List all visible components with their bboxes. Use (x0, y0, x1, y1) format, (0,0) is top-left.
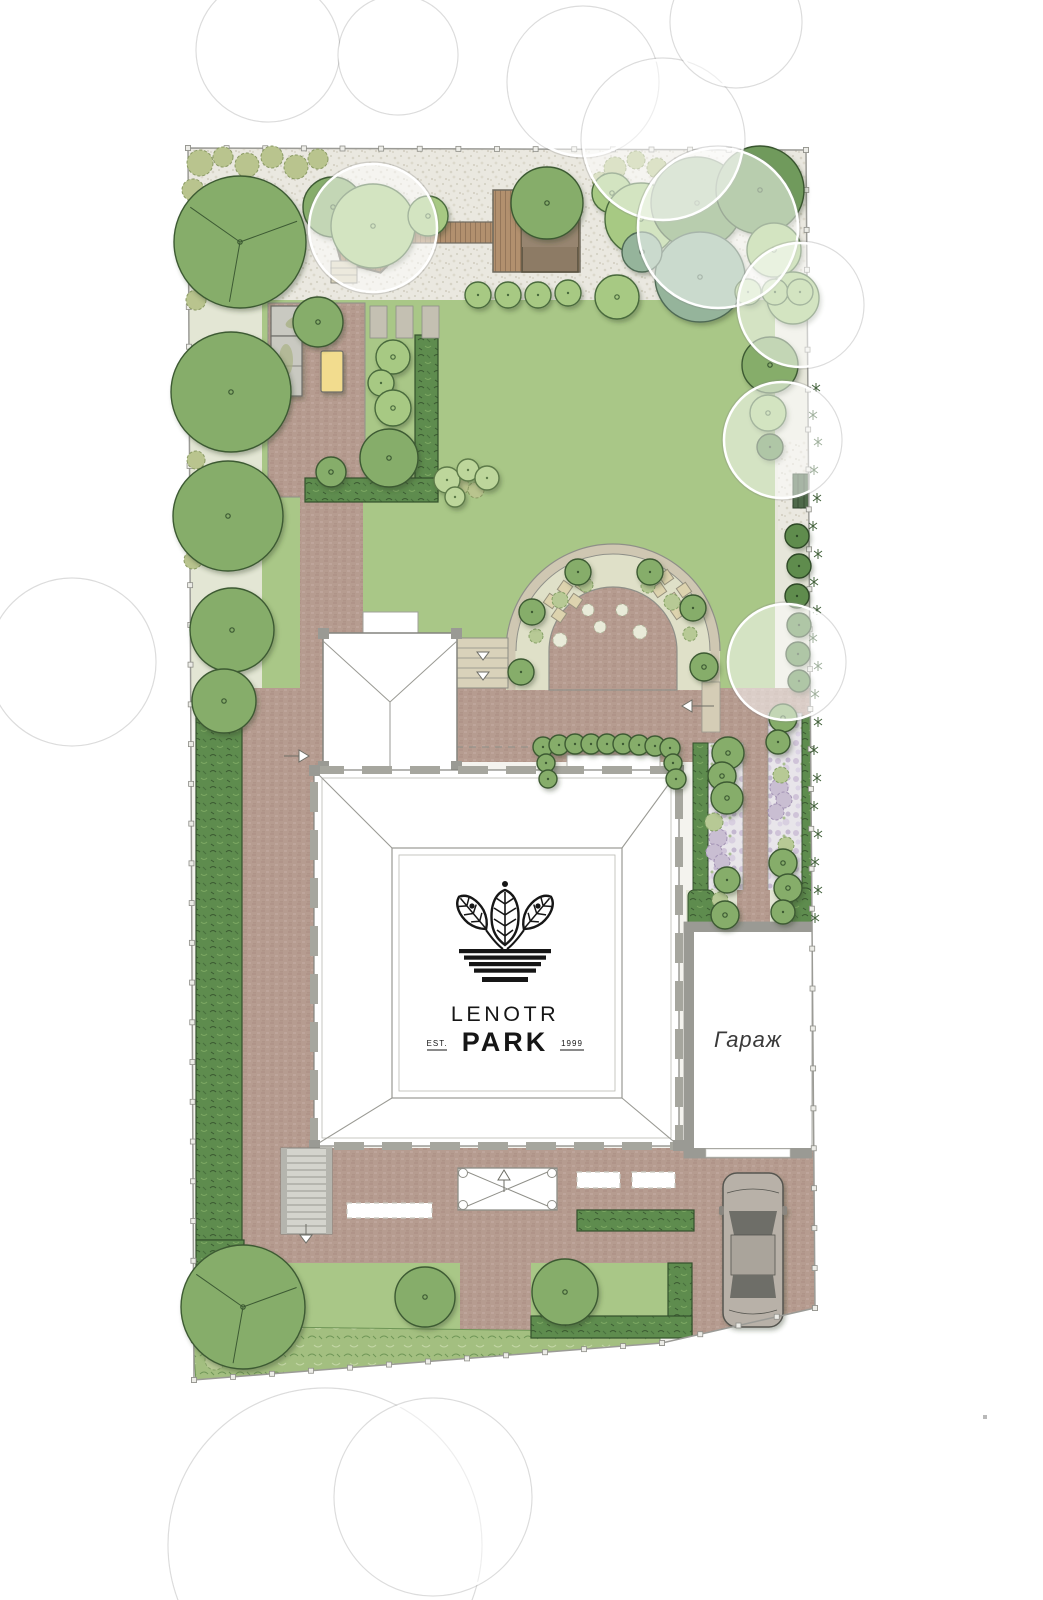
groundcover-blob (582, 604, 594, 616)
groundcover-blob (213, 147, 233, 167)
tree (511, 167, 583, 239)
fence-post (190, 1139, 195, 1144)
terrace-steps (457, 638, 508, 688)
fence-post (582, 1347, 587, 1352)
fence-post (543, 1350, 548, 1355)
tree-center-mark (692, 607, 694, 609)
car-windshield (729, 1211, 777, 1235)
tree-center-mark (542, 746, 544, 748)
tree-center-mark (777, 741, 779, 743)
tree-center-mark (654, 745, 656, 747)
tree-center-mark (672, 762, 674, 764)
fence-post (813, 1306, 818, 1311)
fence-post (186, 146, 191, 151)
groundcover-blob (529, 629, 543, 643)
vine-icon (809, 521, 817, 531)
fence-post (426, 1359, 431, 1364)
tree-center-mark (486, 477, 488, 479)
fence-post (808, 786, 813, 791)
fence-post (340, 146, 345, 151)
tree-center-mark (558, 744, 560, 746)
tree (774, 874, 802, 902)
fence-post (806, 507, 811, 512)
groundcover-blob (594, 621, 606, 633)
vine-icon (814, 885, 822, 895)
groundcover-blob (284, 155, 308, 179)
fence-post (379, 146, 384, 151)
fence-post (190, 1020, 195, 1025)
tree (293, 297, 343, 347)
logo-name-top: LENOTR (451, 1002, 559, 1026)
fence-post (189, 940, 194, 945)
fence-post (698, 1332, 703, 1337)
fence-post (465, 1356, 470, 1361)
tree (532, 1259, 598, 1325)
fence-post (804, 227, 809, 232)
fence-post (456, 146, 461, 151)
existing-tree-canopy (336, 1400, 530, 1594)
entrance-porch (458, 1168, 557, 1210)
tree-center-mark (537, 294, 539, 296)
groundcover-blob (664, 594, 680, 610)
paving-pad (422, 306, 439, 338)
tree (711, 782, 743, 814)
fence-post (621, 1344, 626, 1349)
tree (395, 1267, 455, 1327)
landscape-plan-sheet: Гараж (0, 0, 1043, 1600)
tree-center-mark (574, 743, 576, 745)
tree-center-mark (590, 743, 592, 745)
fence-post (301, 146, 306, 151)
fence-post (188, 583, 193, 588)
tree-center-mark (454, 496, 456, 498)
groundcover-blob (187, 451, 205, 469)
groundcover-blob (235, 153, 259, 177)
groundcover-blob (308, 149, 328, 169)
tree-center-mark (796, 535, 798, 537)
tree-center-mark (545, 762, 547, 764)
existing-tree-canopy (728, 604, 844, 720)
car-mirror (782, 1206, 787, 1215)
tree (192, 669, 256, 733)
fence-post (811, 1066, 816, 1071)
stepping-pads (370, 306, 439, 338)
groundcover-blob (773, 767, 789, 783)
fence-post (417, 146, 422, 151)
fence-post (812, 1186, 817, 1191)
fence-post (495, 147, 500, 152)
patio-table (321, 351, 343, 392)
planter-box (347, 1203, 432, 1218)
fence-post (188, 662, 193, 667)
groundcover-blob (552, 592, 568, 608)
fence-post (191, 1219, 196, 1224)
vine-icon (813, 493, 821, 503)
car-roof (731, 1235, 775, 1275)
tree-center-mark (567, 292, 569, 294)
existing-tree-canopy (309, 164, 437, 292)
tree (316, 457, 346, 487)
fence-post (809, 906, 814, 911)
fence-post (812, 1266, 817, 1271)
existing-tree-canopy (738, 243, 862, 367)
tree (769, 849, 797, 877)
tree-center-mark (520, 671, 522, 673)
groundcover-blob (187, 150, 213, 176)
fence-post (807, 547, 812, 552)
vine-icon (813, 773, 821, 783)
paving-pad (396, 306, 413, 338)
planter-box (577, 1172, 620, 1188)
tree-center-mark (477, 294, 479, 296)
tree-center-mark (622, 743, 624, 745)
groundcover-blob (616, 604, 628, 616)
groundcover-blob (768, 804, 784, 820)
tree-center-mark (577, 571, 579, 573)
fence-post (533, 147, 538, 152)
guest-house (318, 612, 462, 772)
logo-est-label: EST. (427, 1039, 448, 1048)
groundcover-blob (683, 627, 697, 641)
tree-center-mark (380, 382, 382, 384)
groundcover-blob (705, 813, 723, 831)
logo-name-bottom: PARK (462, 1027, 549, 1057)
fence-post (387, 1362, 392, 1367)
fence-post (190, 1099, 195, 1104)
fence-post (191, 1258, 196, 1263)
fence-post (810, 1026, 815, 1031)
tree-center-mark (547, 778, 549, 780)
logo-year-label: 1999 (561, 1039, 583, 1048)
vine-icon (814, 717, 822, 727)
fence-post (736, 1323, 741, 1328)
fence-post (810, 986, 815, 991)
vine-icon (810, 577, 818, 587)
tree-center-mark (531, 611, 533, 613)
tree-center-mark (446, 479, 448, 481)
tree (595, 275, 639, 319)
groundcover-blob (553, 633, 567, 647)
tree-center-mark (467, 469, 469, 471)
fence-post (348, 1365, 353, 1370)
tree-center-mark (606, 743, 608, 745)
west-hedge (196, 695, 242, 1240)
fence-post (188, 742, 193, 747)
garage-door (706, 1149, 790, 1157)
stray-mark (983, 1415, 987, 1419)
fence-post (190, 1060, 195, 1065)
tree (171, 332, 291, 452)
fence-post (190, 980, 195, 985)
fence-post (660, 1341, 665, 1346)
landscape-plan: Гараж (0, 0, 1043, 1600)
existing-tree-canopy (724, 382, 840, 498)
fence-post (809, 826, 814, 831)
fence-post (231, 1374, 236, 1379)
fence-post (309, 1368, 314, 1373)
vine-icon (814, 829, 822, 839)
fence-post (811, 1146, 816, 1151)
fence-post (189, 821, 194, 826)
fence-post (189, 901, 194, 906)
tree (375, 390, 411, 426)
tree-center-mark (796, 595, 798, 597)
fence-post (504, 1353, 509, 1358)
parked-car (719, 1173, 787, 1327)
fence-post (189, 861, 194, 866)
fence-post (809, 866, 814, 871)
fence-post (189, 781, 194, 786)
tree (173, 461, 283, 571)
tree (360, 429, 418, 487)
tree-center-mark (782, 911, 784, 913)
groundcover-blob (261, 146, 283, 168)
fence-post (812, 1226, 817, 1231)
garage-label: Гараж (714, 1027, 782, 1052)
tree-center-mark (638, 744, 640, 746)
fence-post (804, 148, 809, 153)
fence-post (192, 1378, 197, 1383)
south-hedge-strip (577, 1210, 694, 1231)
tree (376, 340, 410, 374)
tree-center-mark (669, 747, 671, 749)
existing-tree-canopy (340, 0, 456, 113)
tree-center-mark (798, 565, 800, 567)
vine-icon (814, 549, 822, 559)
planter-box (632, 1172, 675, 1188)
groundcover-blob (633, 625, 647, 639)
fence-post (811, 1106, 816, 1111)
fence-post (810, 946, 815, 951)
fence-post (774, 1314, 779, 1319)
fence-post (270, 1371, 275, 1376)
tree (190, 588, 274, 672)
paving-pad (370, 306, 387, 338)
tree-center-mark (726, 879, 728, 881)
exterior-stairs (281, 1148, 332, 1243)
tree-center-mark (675, 778, 677, 780)
tree-center-mark (507, 294, 509, 296)
existing-tree-canopy (0, 580, 154, 744)
fence-post (191, 1179, 196, 1184)
tree-center-mark (649, 571, 651, 573)
car-rear-window (730, 1275, 776, 1298)
tree (711, 901, 739, 929)
tree (690, 653, 718, 681)
car-mirror (719, 1206, 724, 1215)
east-walk-accent (702, 682, 720, 732)
